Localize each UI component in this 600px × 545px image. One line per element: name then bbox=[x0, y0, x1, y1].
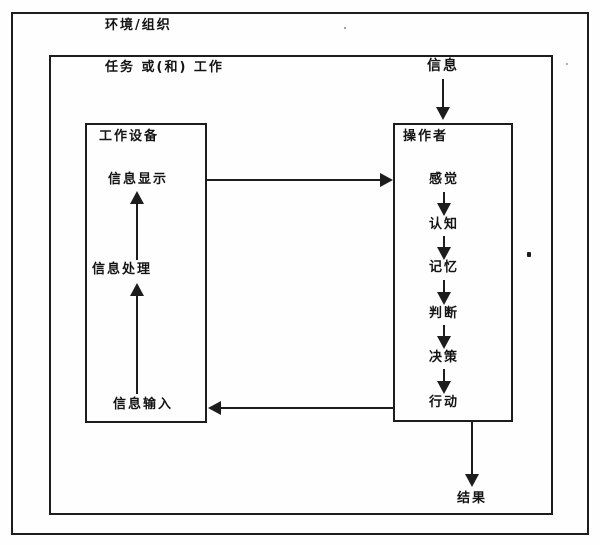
operator-item-memory: 记忆 bbox=[410, 261, 478, 276]
arrow-result-line bbox=[471, 422, 473, 474]
operator-item-action: 行动 bbox=[410, 396, 478, 411]
arrow-input-to-processing-line bbox=[136, 294, 138, 394]
arrow-information-line bbox=[442, 79, 444, 107]
equipment-title: 工作设备 bbox=[99, 130, 159, 145]
equipment-item-processing: 信息处理 bbox=[92, 263, 152, 278]
arrowhead-memory-judgment bbox=[437, 292, 451, 305]
scan-speckle bbox=[344, 27, 346, 29]
arrowhead-sensation-cognition bbox=[437, 203, 451, 216]
information-label: 信息 bbox=[427, 58, 459, 74]
arrow-processing-to-display-line bbox=[136, 202, 138, 260]
arrow-judgment-decision-line bbox=[443, 325, 445, 336]
arrowhead-display-to-operator bbox=[380, 173, 393, 187]
arrowhead-result-down bbox=[465, 474, 479, 487]
task-label: 任务 或(和) 工作 bbox=[105, 61, 224, 76]
operator-item-sensation: 感觉 bbox=[410, 173, 478, 188]
diagram-canvas: 环境/组织 任务 或(和) 工作 信息 工作设备 信息显示 信息处理 信息输入 … bbox=[0, 0, 600, 545]
arrowhead-action-to-input bbox=[208, 401, 221, 415]
arrowhead-judgment-decision bbox=[437, 336, 451, 349]
arrow-decision-action-line bbox=[443, 369, 445, 381]
arrow-sensation-cognition-line bbox=[443, 192, 445, 203]
operator-item-cognition: 认知 bbox=[410, 218, 478, 233]
arrow-memory-judgment-line bbox=[443, 280, 445, 292]
operator-title: 操作者 bbox=[403, 130, 448, 145]
result-label: 结果 bbox=[457, 492, 487, 507]
scan-speckle bbox=[566, 63, 568, 65]
scan-speckle bbox=[527, 252, 531, 257]
operator-item-decision: 决策 bbox=[410, 351, 478, 366]
environment-label: 环境/组织 bbox=[105, 19, 172, 34]
arrow-action-to-input-line bbox=[221, 407, 393, 409]
equipment-item-input: 信息输入 bbox=[113, 398, 173, 413]
operator-item-judgment: 判断 bbox=[410, 307, 478, 322]
arrow-display-to-operator-line bbox=[207, 179, 380, 181]
arrowhead-cognition-memory bbox=[437, 247, 451, 260]
arrow-cognition-memory-line bbox=[443, 236, 445, 247]
arrowhead-decision-action bbox=[437, 381, 451, 394]
equipment-item-display: 信息显示 bbox=[108, 173, 168, 188]
arrowhead-information-down bbox=[436, 107, 450, 120]
